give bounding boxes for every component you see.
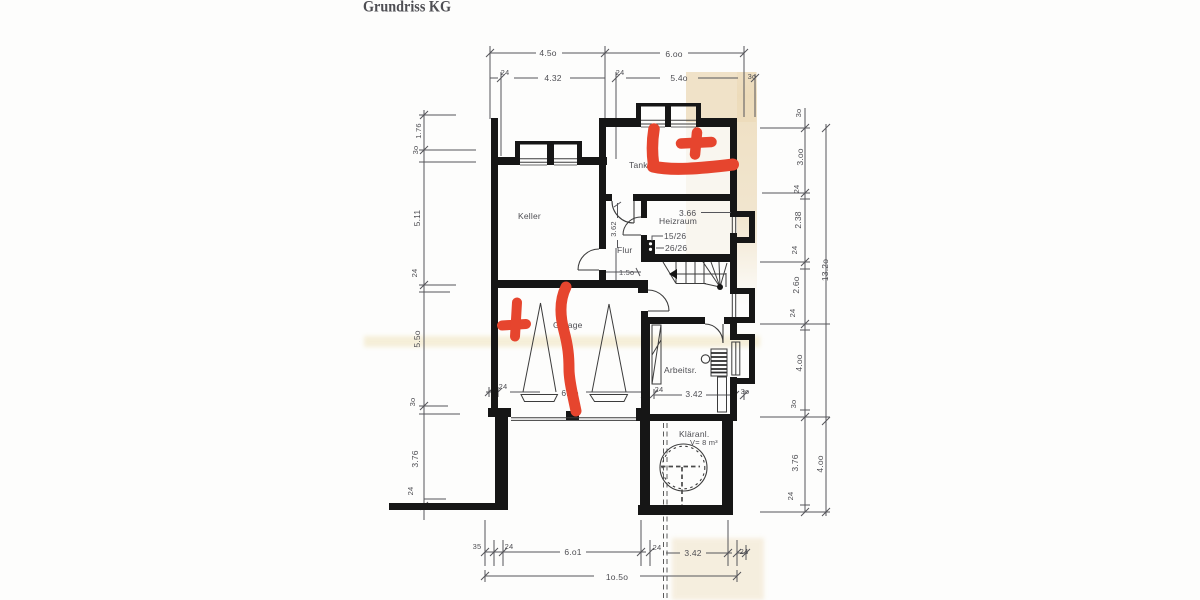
svg-text:4.32: 4.32 — [544, 73, 561, 83]
svg-text:3.76: 3.76 — [410, 450, 420, 467]
svg-text:3.66: 3.66 — [679, 208, 696, 218]
svg-text:24: 24 — [740, 547, 749, 556]
svg-text:35: 35 — [473, 542, 482, 551]
svg-text:3o: 3o — [748, 72, 757, 81]
svg-text:Arbeitsr.: Arbeitsr. — [664, 365, 697, 375]
svg-text:2.38: 2.38 — [793, 211, 803, 228]
svg-text:6.oo: 6.oo — [665, 49, 682, 59]
svg-text:3o: 3o — [794, 109, 803, 118]
svg-text:3o: 3o — [741, 387, 750, 396]
svg-text:1o.5o: 1o.5o — [606, 572, 628, 582]
svg-text:4.oo: 4.oo — [794, 354, 804, 371]
svg-text:3.oo: 3.oo — [795, 148, 805, 165]
svg-text:3o: 3o — [408, 398, 417, 407]
svg-text:24: 24 — [410, 269, 419, 278]
svg-text:6.o1: 6.o1 — [564, 547, 581, 557]
svg-text:24: 24 — [499, 382, 508, 391]
svg-text:V= 8 m³: V= 8 m³ — [690, 438, 718, 447]
svg-text:3.62: 3.62 — [609, 221, 618, 236]
svg-text:3.76: 3.76 — [790, 454, 800, 471]
svg-text:24: 24 — [792, 185, 801, 194]
svg-text:4.oo: 4.oo — [815, 455, 825, 472]
svg-text:4.5o: 4.5o — [539, 48, 556, 58]
svg-text:24: 24 — [616, 68, 625, 77]
svg-text:5.11: 5.11 — [412, 210, 422, 227]
svg-text:3o: 3o — [789, 400, 798, 409]
svg-text:24: 24 — [786, 492, 795, 501]
svg-text:Grundriss KG: Grundriss KG — [363, 0, 451, 16]
svg-text:24: 24 — [505, 542, 514, 551]
svg-text:13.2o: 13.2o — [820, 259, 830, 281]
svg-text:5.5o: 5.5o — [412, 330, 422, 347]
svg-text:2.6o: 2.6o — [791, 276, 801, 293]
svg-text:26/26: 26/26 — [665, 243, 687, 253]
svg-text:3o: 3o — [411, 146, 420, 155]
svg-text:5.4o: 5.4o — [670, 73, 687, 83]
svg-text:24: 24 — [653, 543, 662, 552]
svg-text:3.42: 3.42 — [685, 389, 702, 399]
svg-text:Flur: Flur — [617, 245, 632, 255]
svg-text:24: 24 — [501, 68, 510, 77]
svg-text:1.76: 1.76 — [414, 123, 423, 138]
svg-text:24: 24 — [790, 246, 799, 255]
svg-text:3.42: 3.42 — [684, 548, 701, 558]
svg-text:Keller: Keller — [518, 211, 541, 221]
svg-text:24: 24 — [655, 385, 664, 394]
svg-text:24: 24 — [406, 487, 415, 496]
svg-text:15/26: 15/26 — [664, 231, 686, 241]
svg-text:24: 24 — [788, 309, 797, 318]
